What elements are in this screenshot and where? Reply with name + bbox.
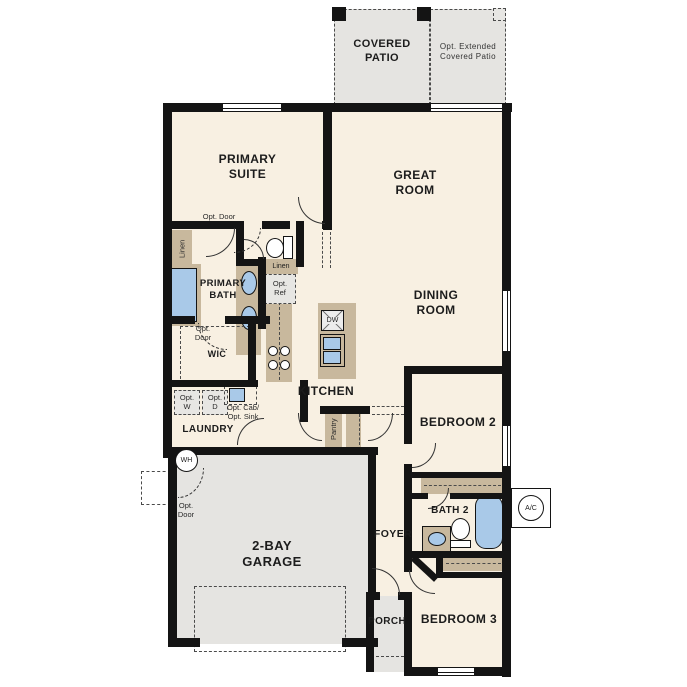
garage-door-dashed [194, 586, 346, 652]
opt-patio-post [493, 8, 506, 21]
opt-washer-box: Opt. W [174, 390, 200, 415]
ac-unit-label: A/C [525, 505, 537, 512]
ac-unit-icon: A/C [518, 495, 544, 521]
opt-dryer-label: Opt. D [208, 394, 222, 411]
wall-segment [168, 638, 200, 647]
cooktop-burner-icon [280, 360, 290, 370]
shower-icon [169, 268, 197, 322]
bedroom2-label: BEDROOM 2 [419, 415, 497, 430]
wall-segment [404, 472, 412, 572]
wall-segment [502, 103, 511, 677]
opt-side-yard-box [141, 471, 171, 505]
wall-segment [168, 447, 378, 455]
opt-door-label: Opt. Door [172, 502, 200, 519]
wall-segment [450, 493, 504, 499]
island-sink-icon [323, 351, 341, 364]
opt-door-label: Opt. Door [190, 325, 216, 342]
sink-icon [428, 532, 446, 546]
toilet-tank-icon [283, 236, 293, 259]
wall-segment [412, 551, 504, 558]
great-room-label: GREAT ROOM [375, 168, 455, 198]
counter-centerline [279, 302, 280, 380]
wall-segment [404, 592, 412, 675]
wall-segment [412, 493, 428, 499]
wall-segment [404, 366, 504, 374]
pantry-label: Pantry [325, 412, 342, 447]
opt-extended-patio-label: Opt. Extended Covered Patio [432, 42, 504, 62]
foyer-label: FOYER [372, 528, 414, 541]
wall-segment [248, 316, 256, 386]
wall-segment [168, 449, 177, 647]
wall-segment [262, 221, 290, 229]
closet-rod-line [446, 563, 501, 564]
water-heater-label: WH [181, 457, 193, 464]
linen-hall-label: Linen [272, 263, 289, 270]
opt-fridge-label: Opt. Ref [273, 280, 287, 297]
window [502, 425, 511, 467]
kitchen-label: KITCHEN [294, 384, 358, 399]
porch-label: PORCH [368, 616, 406, 629]
garage-label: 2-BAY GARAGE [222, 538, 322, 571]
pantry-cabinet: Pantry [325, 412, 342, 447]
linen-hall-cabinet: Linen [264, 259, 298, 274]
wic-label: WIC [202, 349, 232, 360]
toilet-tank-icon [450, 540, 471, 548]
linen-closet-label: Linen [172, 230, 192, 268]
linen-closet: Linen [172, 230, 192, 268]
closet-rod-line [359, 414, 360, 445]
primary-suite-label: PRIMARY SUITE [200, 152, 295, 182]
wall-segment [163, 103, 172, 458]
wall-segment [436, 572, 504, 578]
dishwasher-icon: DW [321, 310, 344, 331]
island-sink-icon [323, 337, 341, 350]
bedroom3-label: BEDROOM 3 [420, 612, 498, 627]
opt-sink-icon [229, 388, 245, 402]
bath2-label: BATH 2 [428, 505, 472, 518]
cooktop-burner-icon [268, 360, 278, 370]
closet-rod-line [424, 485, 501, 486]
cooktop-burner-icon [280, 346, 290, 356]
opt-washer-label: Opt. W [180, 394, 194, 411]
patio-post [417, 7, 431, 21]
toilet-icon [451, 518, 470, 540]
porch-edge-dashed [371, 656, 404, 657]
wall-segment [163, 380, 258, 387]
window [502, 290, 511, 352]
window [437, 667, 475, 676]
patio-post [332, 7, 346, 21]
cooktop-burner-icon [268, 346, 278, 356]
wall-segment [163, 316, 195, 324]
wall-segment [404, 366, 412, 444]
wall-segment [296, 221, 304, 267]
opt-fridge-box: Opt. Ref [264, 274, 296, 304]
primary-bath-label: PRIMARY BATH [194, 278, 252, 302]
floor-plan: Linen Linen DW Pantry Opt. W Opt. D Opt.… [0, 0, 687, 687]
opt-door-label: Opt. Door [196, 213, 242, 222]
bathtub-icon [475, 495, 503, 549]
sliding-glass-door [430, 103, 503, 112]
covered-patio-label: COVERED PATIO [339, 38, 425, 66]
toilet-icon [266, 238, 284, 258]
wall-segment [366, 596, 374, 672]
dishwasher-label: DW [326, 317, 340, 324]
dining-room-label: DINING ROOM [400, 288, 472, 318]
water-heater-icon: WH [175, 449, 198, 472]
window [222, 103, 282, 112]
wall-segment [320, 406, 370, 414]
laundry-label: LAUNDRY [180, 424, 236, 437]
cased-opening [322, 232, 331, 268]
wall-segment [412, 472, 504, 478]
